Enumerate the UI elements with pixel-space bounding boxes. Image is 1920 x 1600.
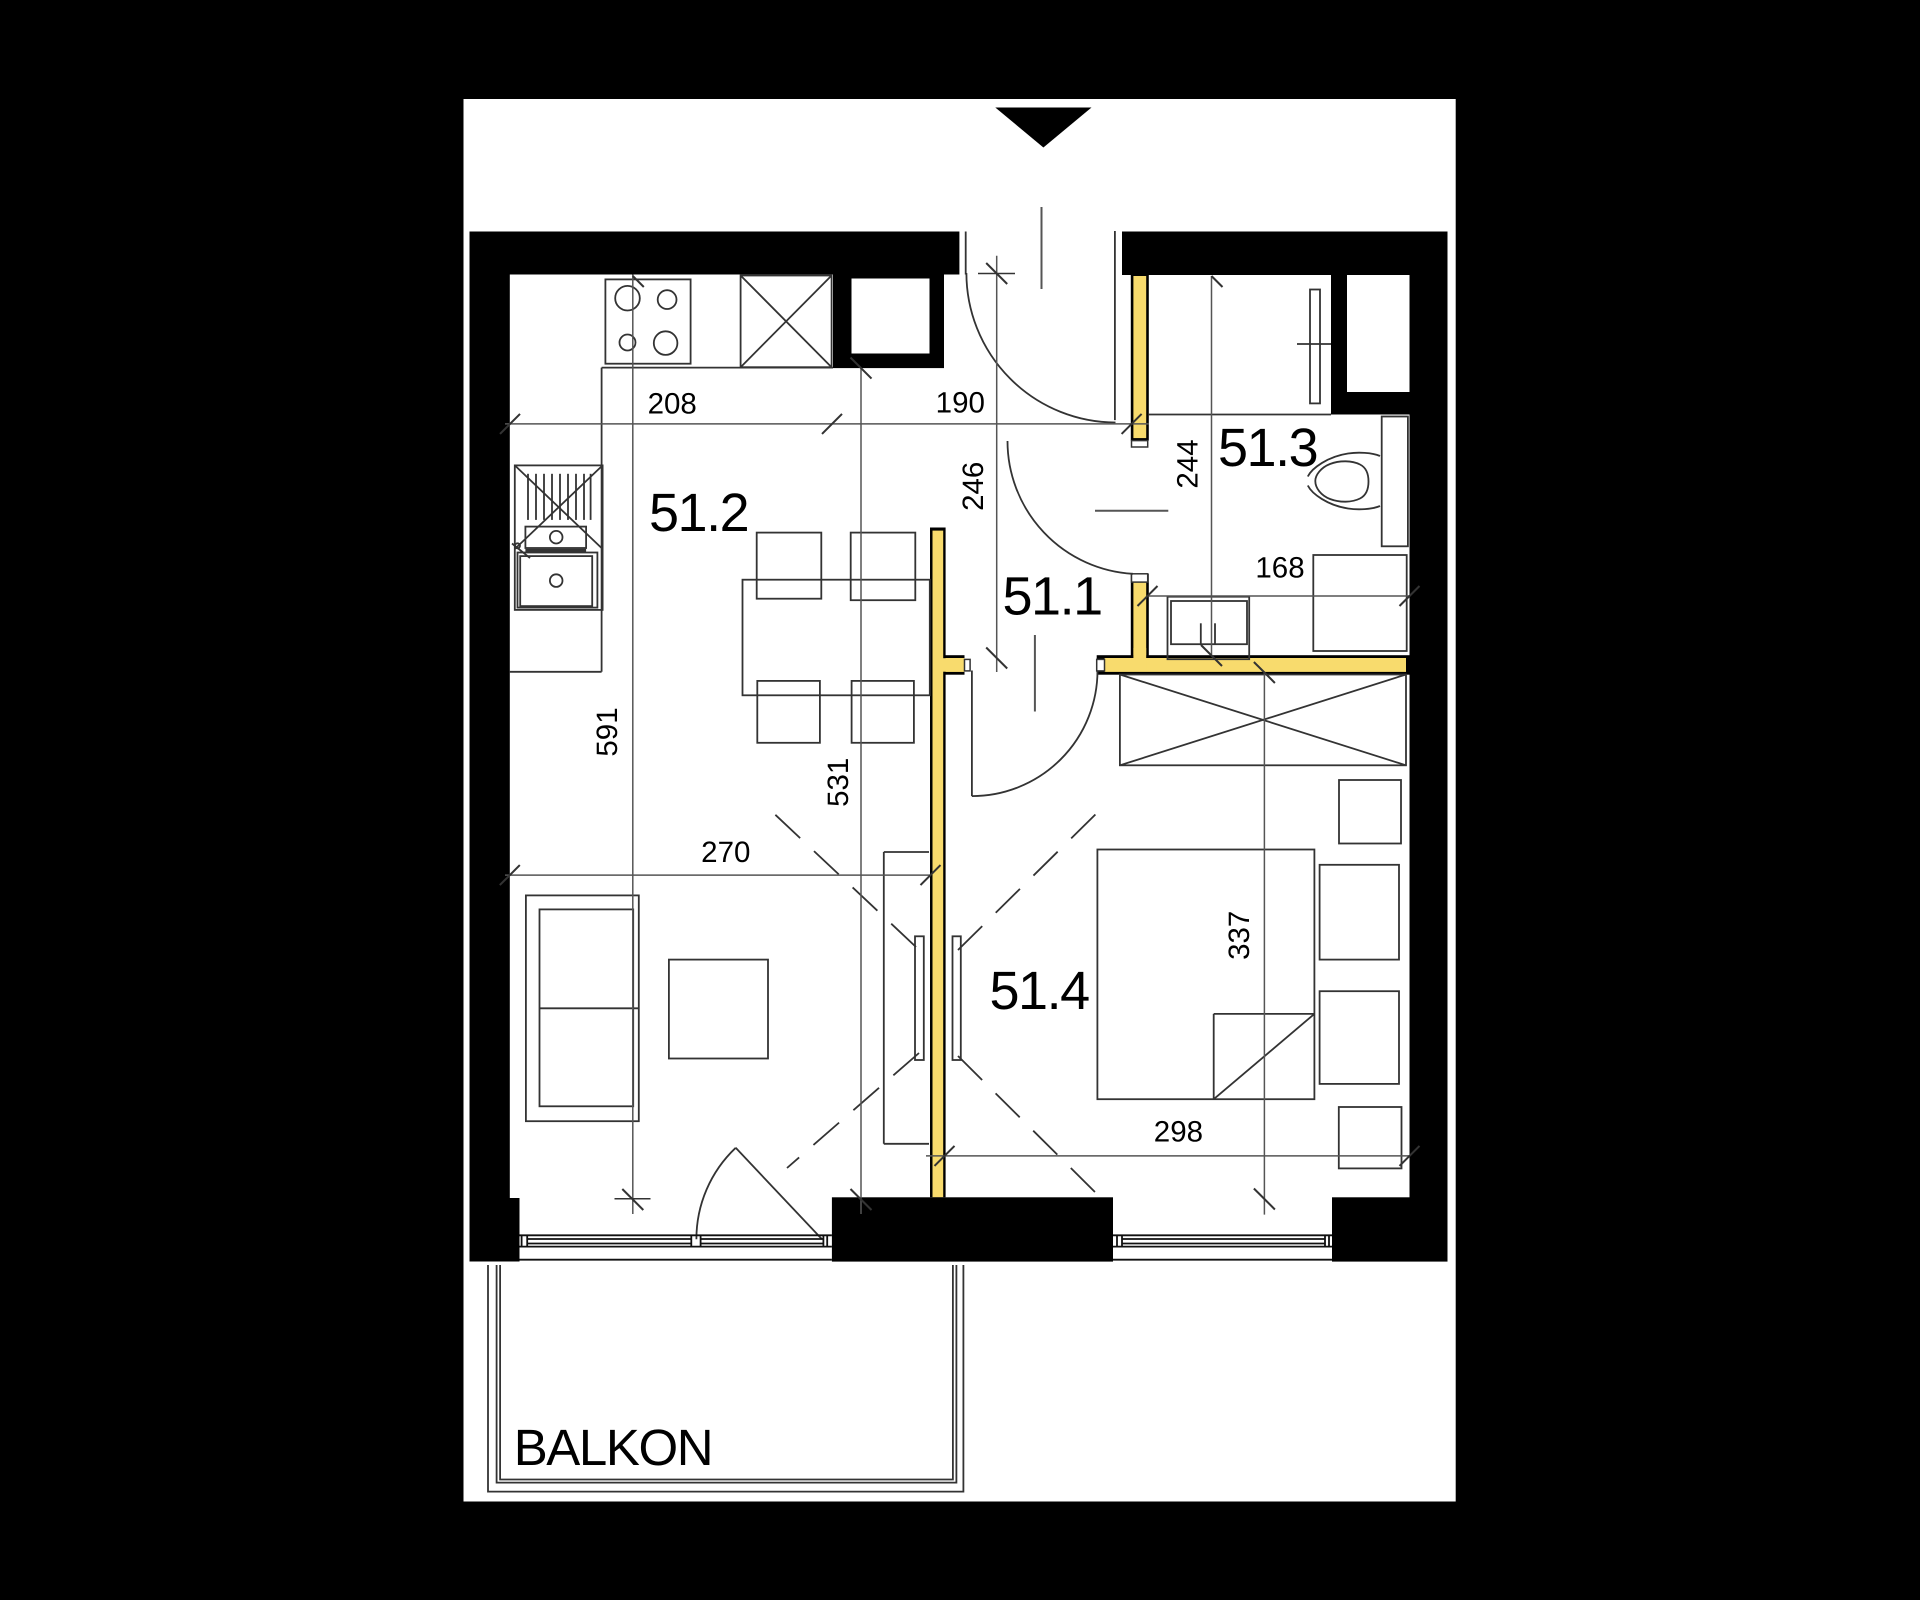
svg-text:270: 270 [701,836,750,869]
svg-text:208: 208 [648,388,697,421]
svg-text:168: 168 [1255,552,1304,585]
svg-text:298: 298 [1154,1116,1203,1149]
svg-text:531: 531 [822,758,855,807]
svg-text:591: 591 [591,707,624,756]
svg-text:190: 190 [936,387,985,420]
svg-text:51.2: 51.2 [649,483,748,543]
svg-text:246: 246 [957,462,990,511]
svg-text:244: 244 [1172,439,1205,488]
svg-text:51.3: 51.3 [1218,418,1317,478]
svg-text:51.1: 51.1 [1003,567,1102,627]
svg-text:BALKON: BALKON [514,1419,713,1476]
svg-text:337: 337 [1223,911,1256,960]
svg-text:51.4: 51.4 [990,961,1090,1021]
